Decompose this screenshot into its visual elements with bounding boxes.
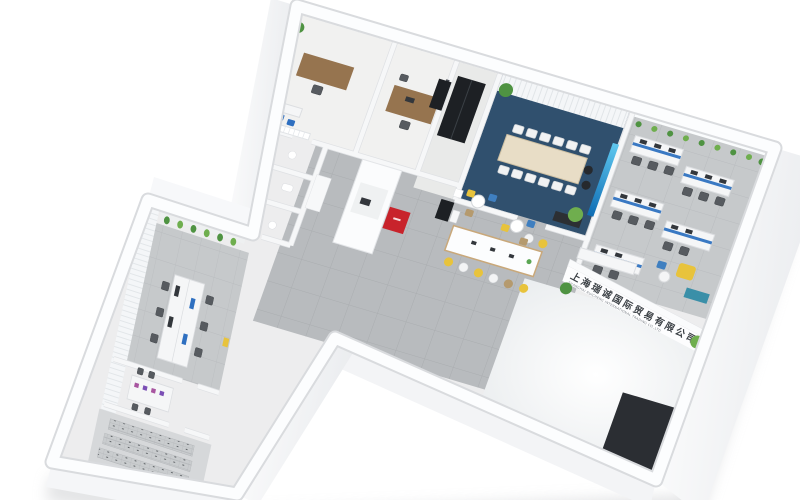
floorplan-render: 上海瑞诚国际贸易有限公司 SHANGHAI RUICHENG INTERNATI… bbox=[0, 0, 800, 500]
